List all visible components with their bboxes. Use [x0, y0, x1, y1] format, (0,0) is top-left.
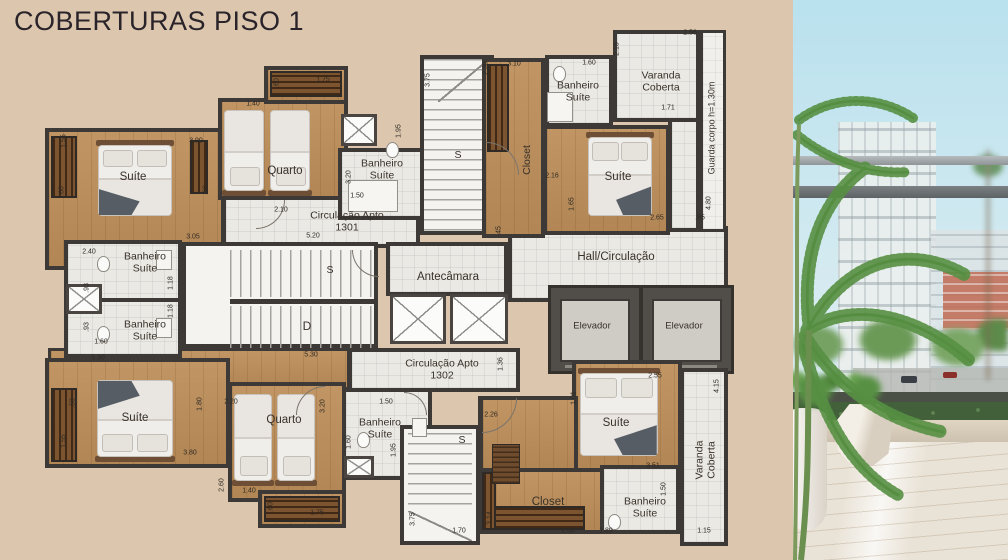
- room-label-banheiro-tm: Banheiro Suíte: [353, 158, 411, 183]
- wardrobe-icon: [190, 140, 208, 194]
- stairs-bottom: [400, 425, 480, 545]
- stair-direction-s-center: S: [326, 264, 333, 276]
- wardrobe-icon: [487, 64, 509, 152]
- wardrobe-icon: [51, 136, 77, 198]
- room-label-suite-tl: Suíte: [120, 171, 147, 185]
- single-bed-icon: [234, 394, 272, 486]
- shaft-icon: [344, 456, 374, 478]
- shower-icon: [348, 180, 398, 212]
- room-label-elevador-2: Elevador: [665, 320, 703, 331]
- bench-icon: [492, 444, 520, 484]
- dimension-label: 1.95: [396, 124, 403, 138]
- shaft-icon: [390, 294, 446, 344]
- room-label-banheiro-bm: Banheiro Suíte: [351, 417, 409, 442]
- room-label-banheiro-tr: Banheiro Suíte: [550, 80, 606, 105]
- shaft-icon: [341, 114, 377, 146]
- stair-direction-d-center: D: [303, 319, 312, 333]
- shaft-icon: [66, 284, 102, 314]
- wardrobe-icon: [270, 71, 342, 97]
- shaft-icon: [450, 294, 508, 344]
- room-label-suite-tr: Suíte: [605, 171, 632, 185]
- room-label-antecamara: Antecâmara: [417, 271, 479, 285]
- varanda-strip: [668, 118, 700, 232]
- single-bed-icon: [270, 110, 310, 196]
- balcony-photo: [793, 0, 1008, 560]
- room-label-varanda-top: Varanda Coberta: [629, 70, 693, 95]
- palm-plant-icon: [793, 0, 1008, 560]
- room-label-circulacao-1301: Circulação Apto 1301: [304, 210, 390, 235]
- wardrobe-icon: [264, 496, 340, 522]
- stair-direction-s-bottom: S: [458, 434, 465, 446]
- room-label-banheiro-l2: Banheiro Suíte: [115, 319, 175, 344]
- page-title: COBERTURAS PISO 1: [14, 6, 304, 37]
- single-bed-icon: [224, 110, 264, 196]
- room-label-guarda-corpo: Guarda corpo h=1.30m: [707, 82, 718, 175]
- room-antecamara: [386, 242, 508, 296]
- room-label-hall: Hall/Circulação: [577, 251, 654, 265]
- room-label-quarto-bottom: Quarto: [266, 414, 301, 428]
- stair-direction-s-top: S: [454, 149, 461, 161]
- room-label-banheiro-br: Banheiro Suíte: [615, 496, 675, 521]
- room-label-closet-bottom: Closet: [532, 496, 565, 510]
- wardrobe-icon: [51, 388, 77, 462]
- room-label-suite-br: Suíte: [603, 417, 630, 431]
- toilet-icon: [97, 326, 110, 342]
- double-bed-icon: [580, 368, 658, 456]
- toilet-icon: [386, 142, 399, 158]
- room-label-varanda-bottom: Varanda Coberta: [694, 433, 719, 487]
- room-label-suite-bl: Suíte: [122, 412, 149, 426]
- toilet-icon: [97, 256, 110, 272]
- room-label-elevador-1: Elevador: [573, 320, 611, 331]
- room-label-quarto-top: Quarto: [267, 165, 302, 179]
- stairs-center: [182, 242, 378, 348]
- room-label-circulacao-1302: Circulação Apto 1302: [399, 358, 485, 383]
- sink-icon: [412, 418, 427, 437]
- room-label-banheiro-l1: Banheiro Suíte: [115, 251, 175, 276]
- floor-plan: COBERTURAS PISO 1: [0, 0, 793, 560]
- dimension-label: 2.60: [219, 478, 226, 492]
- stair-diagonal: [438, 60, 488, 102]
- room-label-closet-top: Closet: [521, 145, 533, 175]
